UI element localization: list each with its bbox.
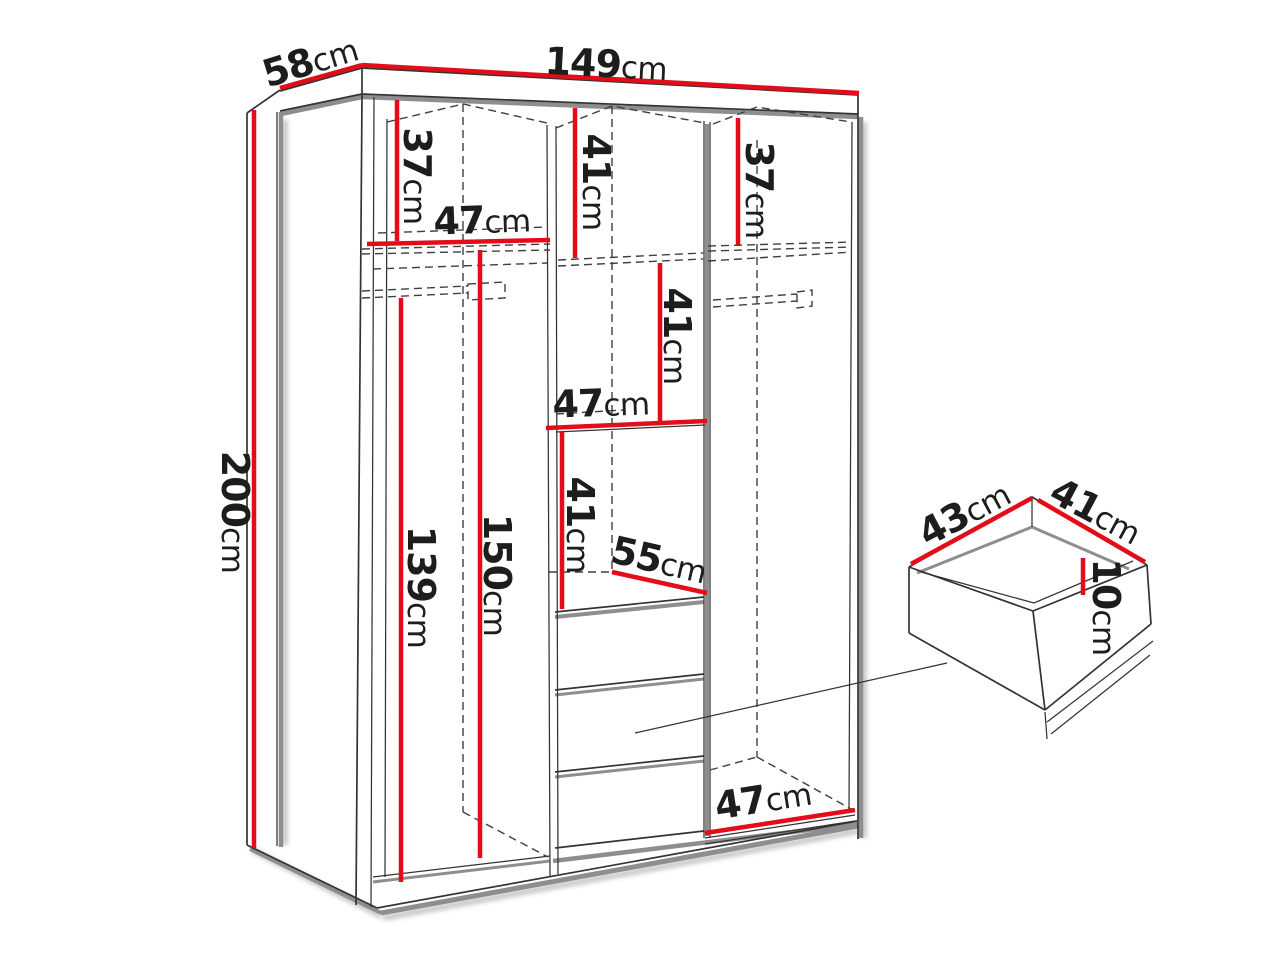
dimension-lines — [254, 65, 1145, 882]
dim-label-41cm-mid: 41cm — [658, 287, 696, 384]
wardrobe-dimension-diagram: 58cm 149cm 200cm 37cm 47cm 41cm 37cm 41c… — [0, 0, 1280, 960]
dim-label-47cm-mid: 47cm — [552, 382, 650, 423]
dim-label-139cm: 139cm — [402, 526, 440, 649]
leader-line — [635, 663, 947, 733]
diagram-linework — [0, 0, 1280, 960]
dim-label-37cm-left: 37cm — [398, 127, 436, 224]
dim-label-41cm-top: 41cm — [577, 133, 615, 230]
dim-label-150cm: 150cm — [478, 514, 516, 637]
dim-label-41cm-low: 41cm — [561, 476, 599, 573]
dim-label-47cm-left: 47cm — [433, 199, 531, 240]
dim-label-10cm-drawer: 10cm — [1087, 558, 1125, 655]
dim-label-149cm: 149cm — [544, 42, 668, 86]
dim-label-200cm: 200cm — [216, 451, 254, 574]
dim-label-37cm-right: 37cm — [740, 141, 778, 238]
